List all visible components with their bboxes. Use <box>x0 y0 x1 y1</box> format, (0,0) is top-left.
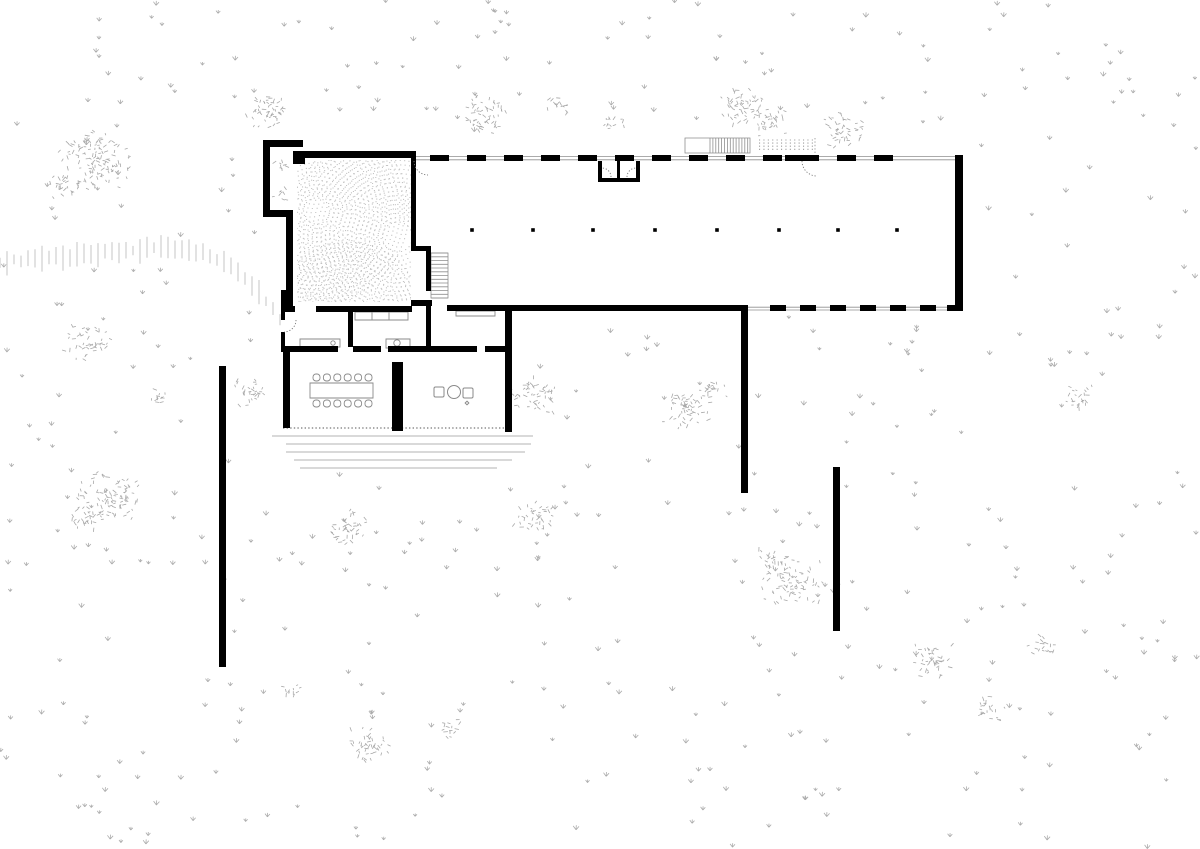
wall <box>411 246 431 251</box>
shrub-cluster <box>762 560 824 605</box>
wall <box>281 332 285 352</box>
wall <box>293 151 416 158</box>
column <box>531 228 535 232</box>
wall <box>426 251 431 291</box>
column <box>653 228 657 232</box>
column <box>895 228 899 232</box>
counter <box>456 311 495 316</box>
window-mullion-dash <box>837 155 856 161</box>
wall <box>316 306 412 312</box>
chair <box>355 374 362 381</box>
glazing-lines <box>416 157 963 311</box>
sink-circle <box>331 341 335 345</box>
shrub-clusters <box>50 88 1092 763</box>
stipple-fan <box>296 242 414 304</box>
window-mullion-dash <box>770 305 786 311</box>
window-mullion-dash <box>615 155 634 161</box>
shrub-cluster <box>245 97 285 128</box>
window-mullion-dash <box>430 155 449 161</box>
chair <box>344 400 351 407</box>
wall <box>598 178 640 182</box>
chair <box>334 374 341 381</box>
sink-circle <box>394 340 400 346</box>
stipple-fan <box>295 158 414 304</box>
shrub-cluster <box>1027 634 1056 654</box>
window-mullion-dash <box>920 305 936 311</box>
island-circle <box>448 386 461 399</box>
counter <box>300 339 340 347</box>
column <box>715 228 719 232</box>
wall <box>955 155 963 311</box>
window-mullion-dash <box>467 155 486 161</box>
shrub-cluster <box>281 685 301 698</box>
window-mullion-dash <box>578 155 597 161</box>
wall <box>505 311 512 432</box>
exterior-stair-treads <box>710 138 748 153</box>
chair <box>323 374 330 381</box>
exterior-stair <box>685 138 815 153</box>
exterior-stair-frame <box>685 138 750 153</box>
shrub-cluster <box>662 388 712 430</box>
door-swing-arc <box>414 161 428 175</box>
interior-stair <box>431 253 448 298</box>
chair <box>355 400 362 407</box>
shrub-cluster <box>699 382 727 398</box>
window-mullion-dash <box>947 305 956 311</box>
wall <box>219 366 226 667</box>
shrub-cluster <box>978 696 1005 720</box>
shrub-cluster <box>235 379 265 408</box>
vegetation-layer <box>0 0 1199 849</box>
chair <box>365 374 372 381</box>
site-plan-canvas <box>0 0 1200 849</box>
window-mullion-dash <box>652 155 671 161</box>
wall <box>283 352 290 428</box>
island-square <box>463 388 473 398</box>
wall <box>353 346 381 352</box>
terrace-steps <box>272 436 533 468</box>
column <box>470 228 474 232</box>
stipple-fan <box>295 158 409 303</box>
chair <box>365 400 372 407</box>
chair <box>313 374 320 381</box>
wall <box>411 158 416 248</box>
shrub-cluster <box>512 501 553 530</box>
hall-window-wall-dashes <box>430 155 956 311</box>
wall <box>426 306 431 346</box>
small-diamond-dot <box>465 401 469 405</box>
grass-tufts <box>0 0 1199 849</box>
wall <box>392 362 403 431</box>
shrub-cluster <box>1066 385 1092 411</box>
shrub-cluster <box>272 187 288 201</box>
shrub-cluster <box>331 509 367 545</box>
shrub-cluster <box>547 98 568 116</box>
shrub-cluster <box>77 471 140 522</box>
window-mullion-dash <box>800 155 819 161</box>
trellis-dot-grid <box>759 140 813 149</box>
kitchen-island <box>434 386 473 405</box>
shrub-cluster <box>466 94 507 133</box>
window-mullion-dash <box>874 155 893 161</box>
window-mullion-dash <box>504 155 523 161</box>
wall <box>293 152 305 164</box>
column <box>591 228 595 232</box>
wall <box>833 467 840 631</box>
shrub-cluster <box>442 720 461 739</box>
door-swing-arc <box>627 168 636 177</box>
hachure-slope-marks <box>0 235 280 325</box>
shrub-cluster <box>759 547 789 569</box>
door-swing-arc <box>602 168 611 177</box>
shrub-cluster <box>758 107 787 136</box>
dining-table-group <box>310 374 373 407</box>
wall <box>447 305 748 311</box>
shrub-cluster <box>824 112 864 148</box>
shrub-cluster <box>508 375 554 414</box>
wall <box>285 346 338 352</box>
door-swing-arc <box>802 161 817 176</box>
door-swing-arc <box>284 320 296 332</box>
built-in-furniture <box>300 311 495 348</box>
shrub-cluster <box>72 507 94 532</box>
chair <box>344 374 351 381</box>
shrub-cluster <box>604 117 625 129</box>
column-row <box>470 228 899 232</box>
column <box>836 228 840 232</box>
chair <box>313 400 320 407</box>
stair-treads <box>431 253 448 298</box>
floor-plan-drawing <box>0 0 1200 849</box>
shrub-cluster <box>58 130 131 190</box>
window-mullion-dash <box>860 305 876 311</box>
wall <box>281 311 285 320</box>
wall <box>348 306 353 347</box>
chair <box>334 400 341 407</box>
window-mullion-dash <box>890 305 906 311</box>
shrub-cluster <box>273 160 289 171</box>
window-mullion-dash <box>726 155 745 161</box>
wall <box>617 161 620 178</box>
window-mullion-dash <box>689 155 708 161</box>
island-square <box>434 387 444 397</box>
court-stipple-paving <box>295 158 414 304</box>
wall <box>741 305 748 493</box>
window-mullion-dash <box>830 305 846 311</box>
chair <box>323 400 330 407</box>
wall <box>411 300 432 306</box>
window-mullion-dash <box>763 155 782 161</box>
dining-table <box>310 383 373 398</box>
window-mullion-dash <box>541 155 560 161</box>
column <box>777 228 781 232</box>
counter <box>355 312 408 320</box>
shrub-cluster <box>913 643 953 678</box>
wall <box>388 346 477 352</box>
shrub-cluster <box>350 727 391 763</box>
window-mullion-dash <box>800 305 816 311</box>
shrub-cluster <box>721 88 768 127</box>
wall <box>263 140 270 217</box>
shrub-cluster <box>152 389 166 403</box>
